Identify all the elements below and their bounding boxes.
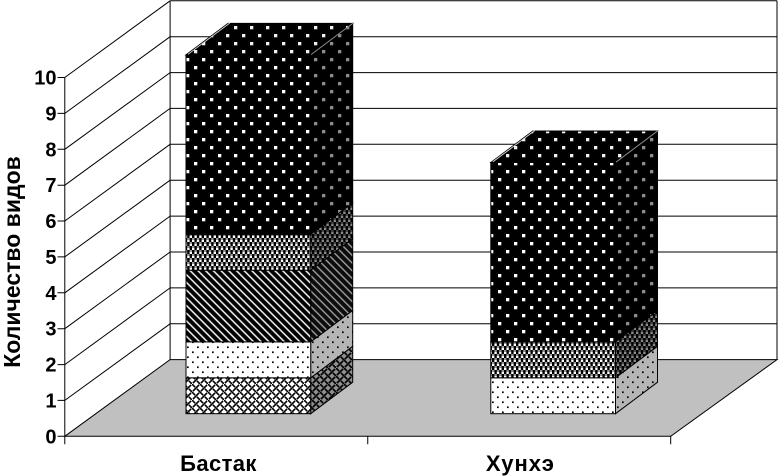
svg-text:3: 3 [45, 319, 56, 341]
svg-text:2: 2 [45, 355, 56, 377]
svg-text:Бастак: Бастак [180, 451, 257, 476]
svg-text:0: 0 [45, 426, 56, 448]
svg-text:9: 9 [45, 103, 56, 125]
svg-text:5: 5 [45, 247, 56, 269]
svg-text:Количество видов: Количество видов [0, 156, 25, 368]
svg-text:Хунхэ: Хунхэ [486, 451, 555, 476]
svg-text:7: 7 [45, 175, 56, 197]
svg-text:6: 6 [45, 211, 56, 233]
svg-text:4: 4 [45, 283, 57, 305]
svg-text:1: 1 [45, 390, 56, 412]
svg-text:8: 8 [45, 139, 56, 161]
svg-text:10: 10 [34, 68, 56, 90]
